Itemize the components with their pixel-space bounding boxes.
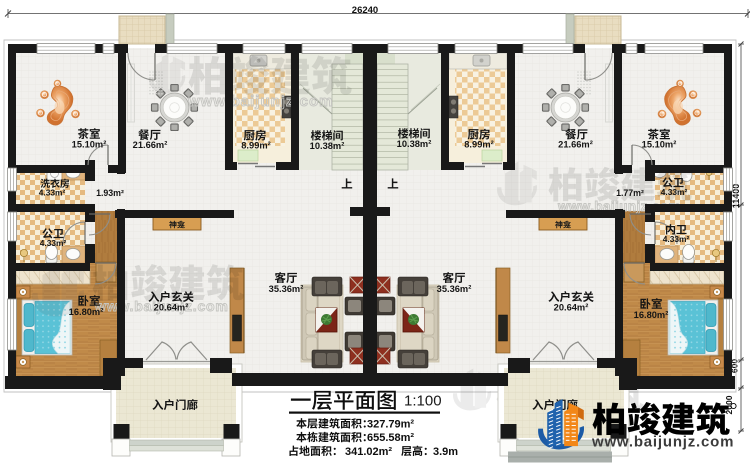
svg-text:8.99m²: 8.99m²	[464, 140, 493, 150]
svg-text:35.36m²: 35.36m²	[437, 284, 472, 294]
svg-text:1:100: 1:100	[404, 393, 442, 410]
svg-text:4.33m²: 4.33m²	[663, 234, 690, 244]
svg-text:4.33m²: 4.33m²	[40, 238, 67, 248]
svg-text:4.33m²: 4.33m²	[39, 188, 66, 198]
svg-text:20.64m²: 20.64m²	[554, 303, 589, 313]
svg-text:26240: 26240	[352, 5, 378, 16]
svg-text:1.77m²: 1.77m²	[616, 188, 644, 198]
svg-text:327.79m²: 327.79m²	[367, 419, 414, 431]
svg-text:3.9m: 3.9m	[433, 446, 458, 458]
svg-text:1.93m²: 1.93m²	[96, 188, 124, 198]
svg-text:www.baijunjz.com: www.baijunjz.com	[187, 93, 333, 110]
svg-text:655.58m²: 655.58m²	[367, 432, 414, 444]
svg-text:8.99m²: 8.99m²	[241, 141, 270, 151]
svg-text:10.38m²: 10.38m²	[397, 139, 432, 149]
svg-text:15.10m²: 15.10m²	[72, 140, 107, 150]
svg-text:16.80m²: 16.80m²	[69, 307, 104, 317]
svg-text:35.36m²: 35.36m²	[269, 284, 304, 294]
svg-text:www.baijunjz.com: www.baijunjz.com	[591, 434, 734, 451]
svg-text:4.33m²: 4.33m²	[661, 187, 688, 197]
svg-text:10.38m²: 10.38m²	[310, 141, 345, 151]
svg-text:21.66m²: 21.66m²	[133, 140, 168, 150]
svg-text:15.10m²: 15.10m²	[642, 140, 677, 150]
svg-text:21.66m²: 21.66m²	[558, 140, 593, 150]
svg-text:16.80m²: 16.80m²	[634, 310, 669, 320]
svg-text:341.02m²: 341.02m²	[345, 446, 392, 458]
svg-text:20.64m²: 20.64m²	[154, 303, 189, 313]
